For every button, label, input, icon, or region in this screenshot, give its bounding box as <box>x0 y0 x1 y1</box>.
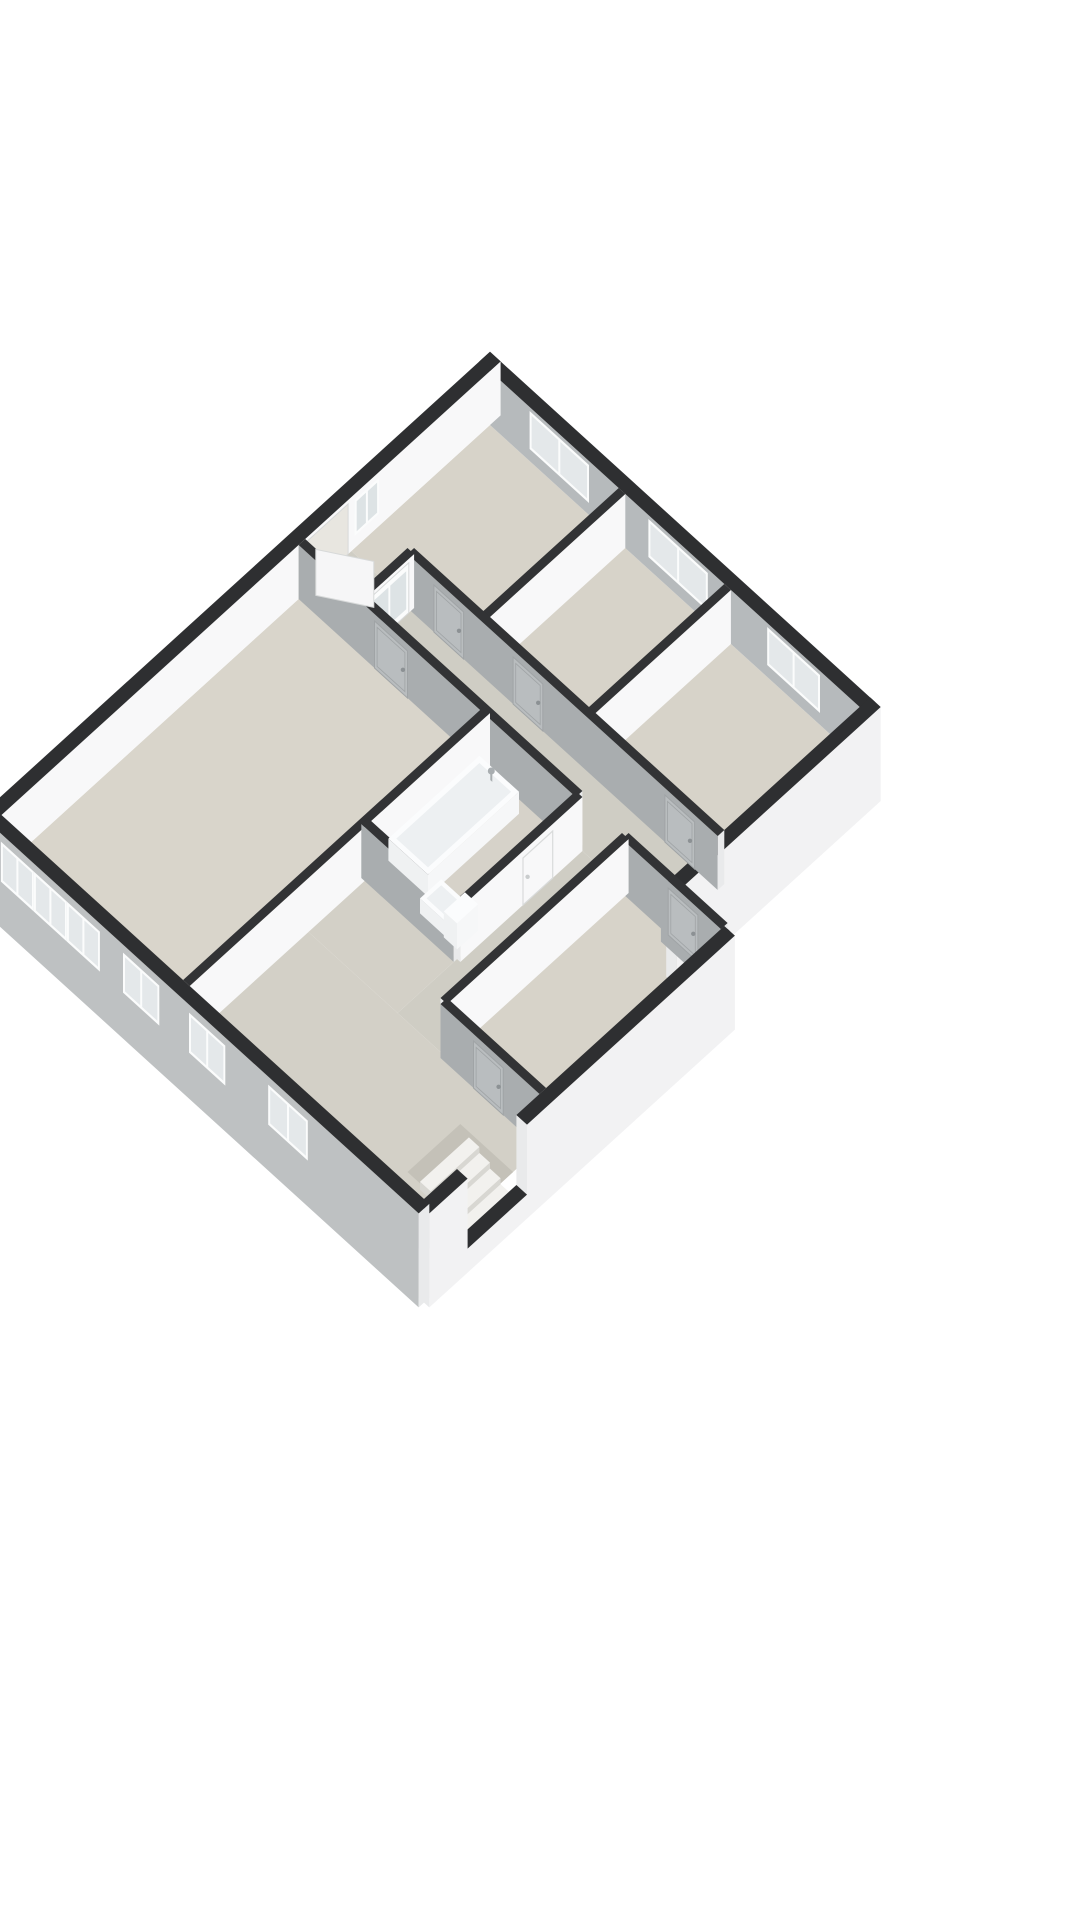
door-handle <box>496 1085 500 1089</box>
door-handle <box>691 932 695 936</box>
door-handle <box>401 668 405 672</box>
floorplan-canvas <box>0 0 1080 1920</box>
floorplan-3d-render <box>0 0 1080 1920</box>
door-handle <box>525 875 529 879</box>
door-handle <box>536 701 540 705</box>
bathtub-faucet <box>488 768 495 775</box>
partition-corridor-north-end <box>718 830 725 890</box>
door-handle <box>688 839 692 843</box>
exterior-wall-sw-end <box>419 1204 430 1308</box>
door-handle <box>457 629 461 633</box>
